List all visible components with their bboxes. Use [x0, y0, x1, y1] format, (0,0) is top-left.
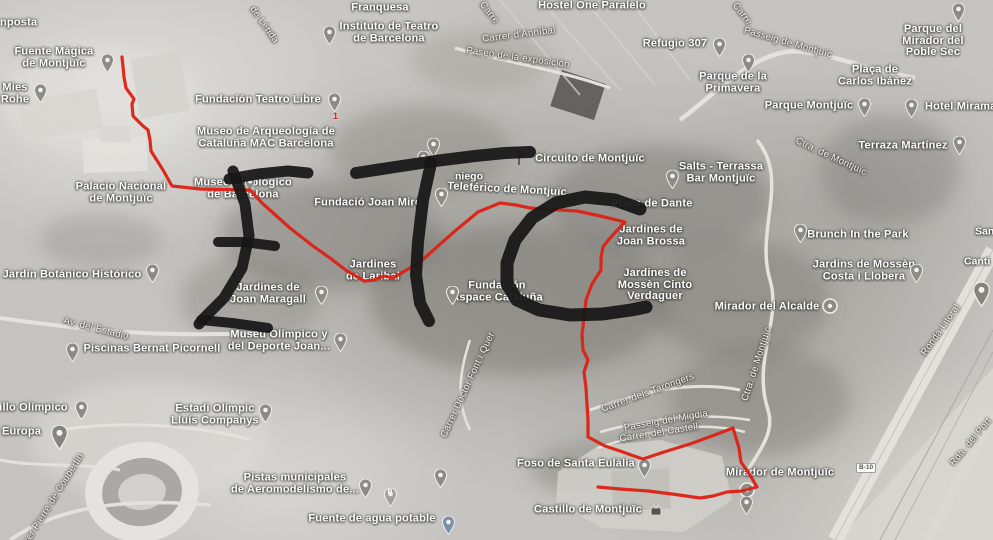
- marker-route-number: 1: [333, 111, 338, 121]
- markers-layer: 1PB-10: [0, 0, 993, 540]
- map-container[interactable]: npostaFuente Mágicade MontjuïcMiesRoheFr…: [0, 0, 993, 540]
- red-route-number: 1: [333, 111, 338, 121]
- marker-b10-shield: B-10: [856, 463, 876, 473]
- parking-letter: P: [384, 489, 397, 496]
- road-shield-label: B-10: [859, 464, 873, 471]
